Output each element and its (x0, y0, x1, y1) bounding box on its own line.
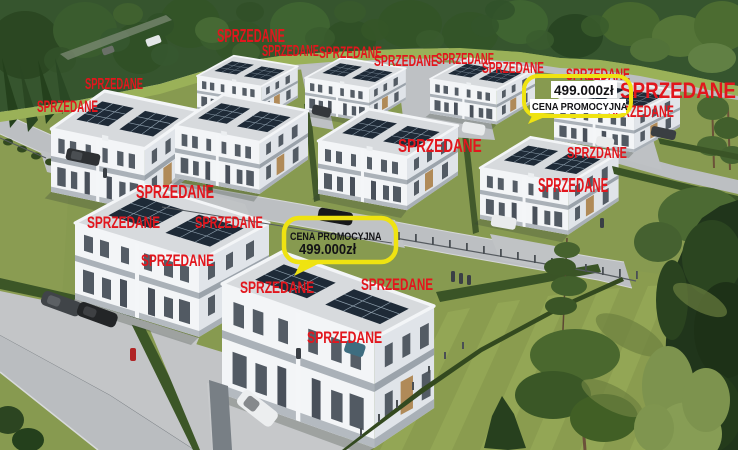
svg-text:SPRZEDANE: SPRZEDANE (319, 42, 382, 61)
svg-text:SPRZDANE: SPRZDANE (567, 144, 627, 161)
svg-text:499.000zł: 499.000zł (299, 240, 356, 257)
svg-text:499.000zł: 499.000zł (554, 83, 614, 98)
svg-text:SPRZEDANE: SPRZEDANE (195, 213, 263, 232)
svg-text:SPRZEDANE: SPRZEDANE (136, 183, 214, 203)
svg-text:SPRZEDANE: SPRZEDANE (87, 214, 160, 232)
svg-text:SPRZEDANE: SPRZEDANE (307, 329, 382, 347)
svg-text:SPRZEDANE: SPRZEDANE (620, 79, 736, 104)
svg-text:SPRZEDANE: SPRZEDANE (482, 59, 544, 77)
svg-text:SPRZEDANE: SPRZEDANE (262, 43, 319, 60)
svg-text:SPRZEDANE: SPRZEDANE (240, 279, 314, 297)
svg-text:SPRZEDANE: SPRZEDANE (141, 252, 214, 270)
svg-text:SPRZEDANE: SPRZEDANE (374, 52, 438, 70)
svg-text:SPRZEDANE: SPRZEDANE (37, 97, 98, 115)
svg-text:SPRZEDANE: SPRZEDANE (398, 137, 482, 156)
svg-text:CENA PROMOCYJNA: CENA PROMOCYJNA (532, 102, 628, 114)
svg-text:SPRZEDANE: SPRZEDANE (538, 175, 608, 197)
svg-text:SPRZEDANE: SPRZEDANE (85, 76, 143, 93)
svg-text:SPRZEDANE: SPRZEDANE (361, 276, 433, 295)
